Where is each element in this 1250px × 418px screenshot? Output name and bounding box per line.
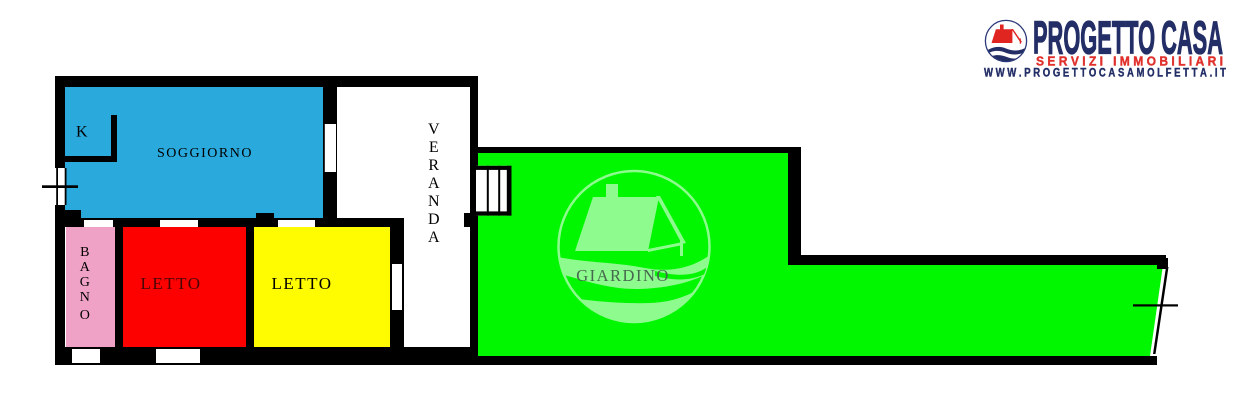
svg-text:G: G <box>80 275 92 290</box>
svg-text:GIARDINO: GIARDINO <box>576 266 670 285</box>
svg-text:E: E <box>429 139 440 156</box>
svg-text:K: K <box>76 124 89 141</box>
svg-text:SOGGIORNO: SOGGIORNO <box>157 146 253 161</box>
svg-text:V: V <box>428 121 441 138</box>
svg-text:N: N <box>80 290 92 305</box>
svg-text:A: A <box>428 229 441 246</box>
svg-text:R: R <box>428 157 440 174</box>
svg-text:B: B <box>80 245 91 260</box>
svg-text:A: A <box>428 175 441 192</box>
svg-text:W W W . P R O G E T T O C A S: W W W . P R O G E T T O C A S A M O L F … <box>984 68 1226 80</box>
svg-text:A: A <box>80 260 92 275</box>
svg-text:LETTO: LETTO <box>140 274 201 293</box>
svg-text:N: N <box>428 193 441 210</box>
svg-text:D: D <box>428 211 441 228</box>
svg-text:S E R V I Z I I M M O B I L: S E R V I Z I I M M O B I L I A R I <box>1036 54 1223 69</box>
svg-text:O: O <box>80 308 92 323</box>
svg-text:LETTO: LETTO <box>271 274 332 293</box>
